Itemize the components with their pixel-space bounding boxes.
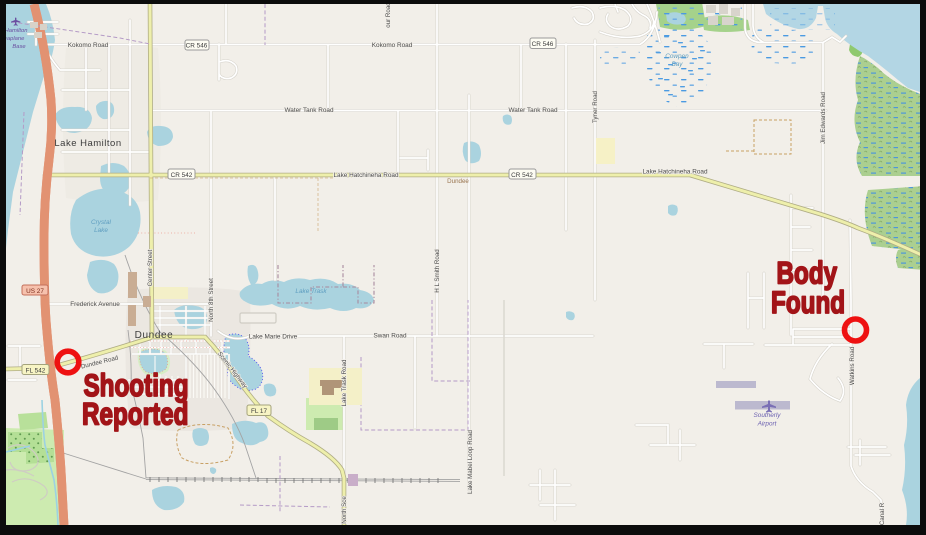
svg-text:CR 546: CR 546 [186,43,208,50]
svg-text:Center Street: Center Street [147,249,154,286]
svg-text:Airport: Airport [757,421,777,428]
svg-text:Reported: Reported [82,397,188,432]
svg-text:Water Tank Road: Water Tank Road [284,107,333,114]
svg-text:FL 17: FL 17 [251,408,268,415]
svg-text:Dundee: Dundee [447,178,469,185]
svg-text:Kokomo Road: Kokomo Road [372,42,413,49]
svg-text:Water Tank Road: Water Tank Road [508,107,557,114]
svg-text:Lake Hamilton: Lake Hamilton [54,138,121,149]
svg-text:Kokomo Road: Kokomo Road [68,42,109,49]
svg-text:Tyner Road: Tyner Road [592,90,599,123]
svg-text:Hamilton: Hamilton [5,28,28,34]
svg-text:North Sce: North Sce [341,496,348,524]
svg-text:Lake Hatchineha Road: Lake Hatchineha Road [333,172,398,179]
svg-text:eaplane: eaplane [4,36,25,42]
svg-text:CR 542: CR 542 [171,172,193,179]
svg-text:US 27: US 27 [26,288,44,295]
svg-text:our Road: our Road [385,2,392,28]
svg-text:Lake Trask: Lake Trask [295,288,327,295]
svg-text:Crystal: Crystal [91,219,111,226]
svg-text:Lake Trask Road: Lake Trask Road [341,359,348,406]
svg-text:Base: Base [12,44,26,50]
svg-text:Dundee: Dundee [135,330,174,341]
svg-text:Lake Marie Drive: Lake Marie Drive [249,334,298,341]
svg-text:H L Smith Road: H L Smith Road [434,249,441,293]
svg-text:Frederick Avenue: Frederick Avenue [70,301,120,308]
svg-text:FL 542: FL 542 [26,367,46,374]
svg-text:Jim Edwards Road: Jim Edwards Road [820,91,827,143]
svg-text:Lake Mabel Loop Road: Lake Mabel Loop Road [467,429,474,494]
svg-text:CR 546: CR 546 [532,41,554,48]
svg-text:Bay: Bay [671,61,683,68]
svg-text:Lake Hatchineha Road: Lake Hatchineha Road [642,169,707,176]
svg-text:Canal R: Canal R [879,502,886,525]
svg-text:Lake: Lake [94,227,108,234]
svg-text:CR 542: CR 542 [511,172,533,179]
svg-text:Found: Found [771,285,845,320]
svg-text:Swan Road: Swan Road [373,333,406,340]
svg-text:North 8th Street: North 8th Street [208,278,215,322]
svg-text:Watkins Road: Watkins Road [849,346,856,385]
svg-text:Southerly: Southerly [754,412,782,419]
svg-text:Cowpen: Cowpen [665,53,689,60]
